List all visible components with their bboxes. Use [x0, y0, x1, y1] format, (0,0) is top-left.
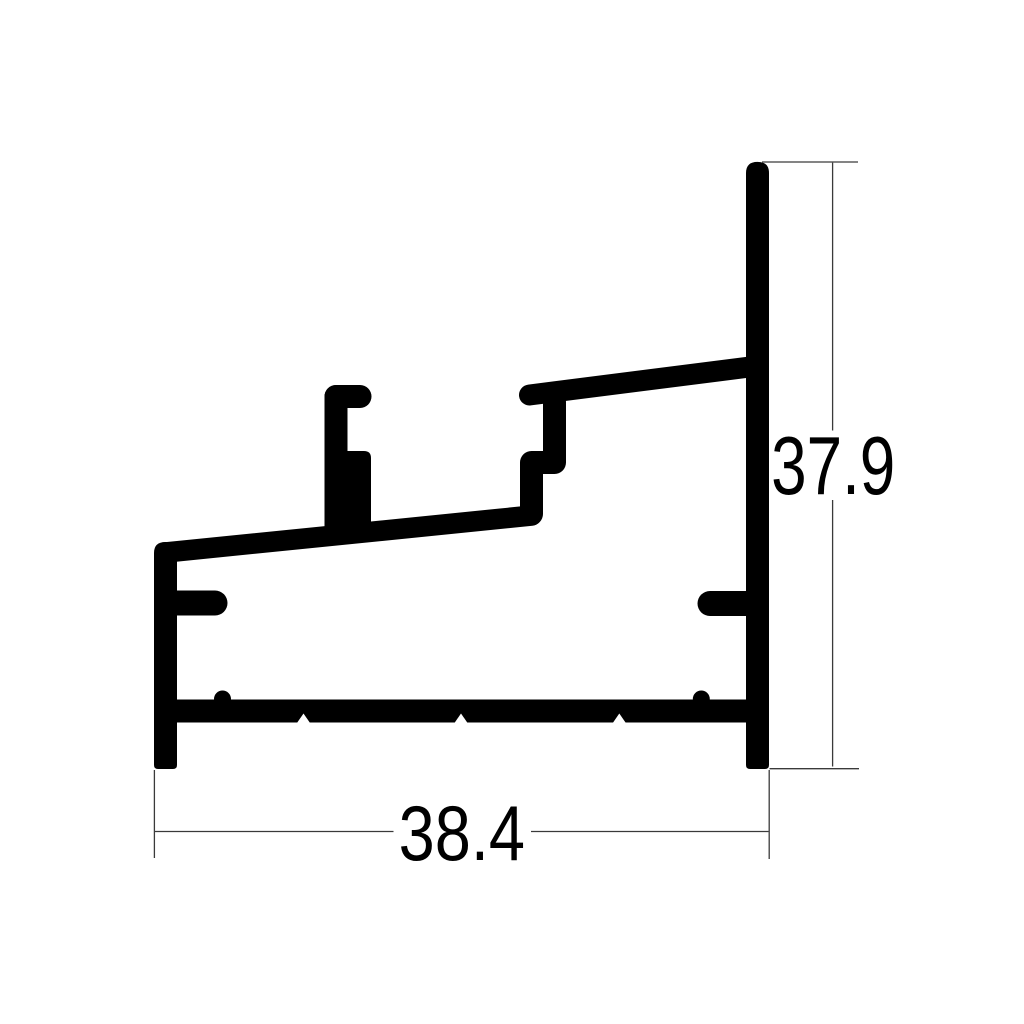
svg-text:38.4: 38.4 [399, 790, 525, 877]
svg-text:37.9: 37.9 [771, 419, 895, 512]
